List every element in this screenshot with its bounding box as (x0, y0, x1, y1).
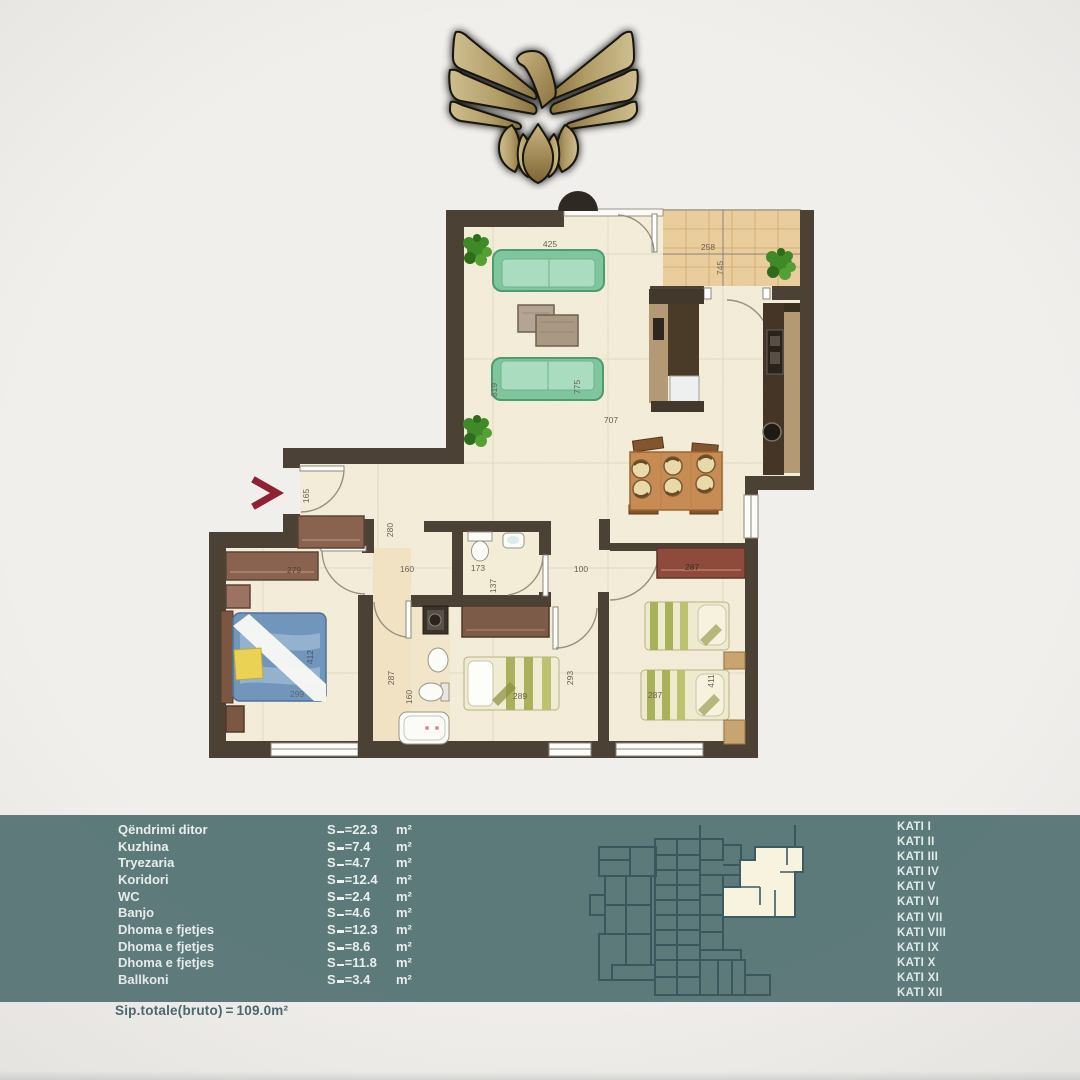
svg-text:160: 160 (404, 690, 414, 704)
svg-text:160: 160 (400, 564, 414, 574)
svg-text:425: 425 (543, 239, 557, 249)
svg-text:173: 173 (471, 563, 485, 573)
svg-text:289: 289 (513, 691, 527, 701)
svg-text:775: 775 (572, 380, 582, 394)
svg-text:287: 287 (386, 671, 396, 685)
svg-text:258: 258 (701, 242, 715, 252)
svg-text:165: 165 (301, 489, 311, 503)
svg-text:411: 411 (706, 674, 716, 688)
svg-text:100: 100 (574, 564, 588, 574)
svg-text:293: 293 (565, 671, 575, 685)
svg-text:707: 707 (604, 415, 618, 425)
svg-text:287: 287 (685, 562, 699, 572)
svg-text:137: 137 (488, 579, 498, 593)
svg-text:619: 619 (489, 383, 499, 397)
svg-text:280: 280 (385, 523, 395, 537)
svg-text:412: 412 (305, 650, 315, 664)
svg-text:279: 279 (287, 565, 301, 575)
svg-text:745: 745 (715, 261, 725, 275)
svg-text:299: 299 (290, 689, 304, 699)
svg-text:287: 287 (648, 690, 662, 700)
